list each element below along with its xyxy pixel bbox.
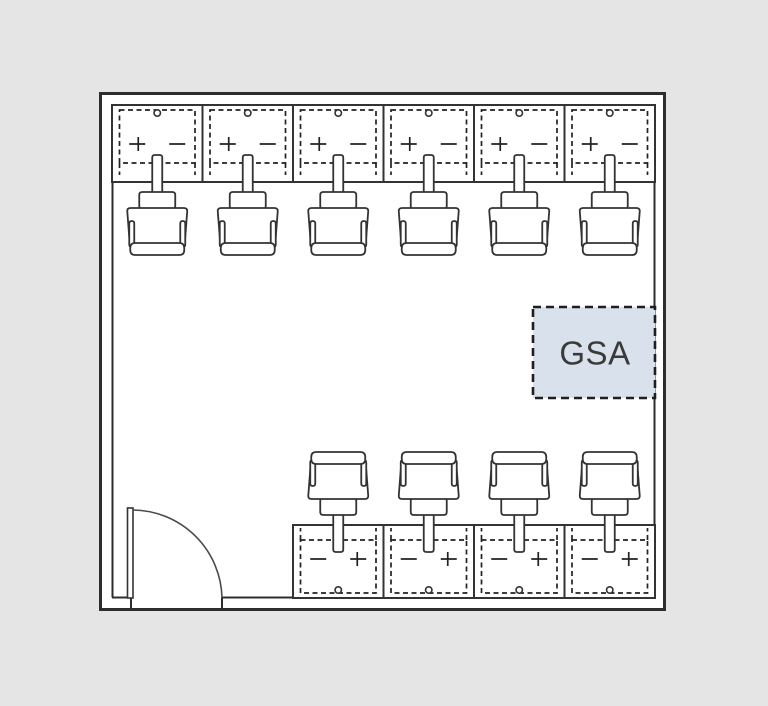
chair-seat-front (311, 243, 365, 255)
desk-grommet (516, 587, 522, 593)
chair-stem (605, 155, 615, 195)
floorplan-canvas: GSA (0, 0, 768, 706)
door-leaf (128, 508, 134, 598)
desk-grommet (426, 587, 432, 593)
chair-stem (333, 512, 343, 552)
chair-stem (605, 512, 615, 552)
chair-seat-front (583, 243, 637, 255)
chair-seat-front (492, 243, 546, 255)
gsa-zone-label: GSA (559, 335, 630, 372)
chair-seat-front (402, 452, 456, 464)
desk-grommet (607, 110, 613, 116)
chair-stem (152, 155, 162, 195)
chair-stem (514, 512, 524, 552)
floorplan-page: GSA (0, 0, 768, 706)
chair-backrest (320, 192, 356, 209)
desk-grommet (607, 587, 613, 593)
chair-seat-front (130, 243, 184, 255)
chair-stem (424, 155, 434, 195)
desk-grommet (245, 110, 251, 116)
chair-backrest (320, 498, 356, 515)
chair-stem (333, 155, 343, 195)
chair-backrest (592, 192, 628, 209)
desk-grommet (154, 110, 160, 116)
chair-backrest (411, 192, 447, 209)
desk-grommet (426, 110, 432, 116)
desk-grommet (335, 587, 341, 593)
chair-seat-front (221, 243, 275, 255)
chair-seat-front (311, 452, 365, 464)
chair-seat-front (402, 243, 456, 255)
desk-grommet (335, 110, 341, 116)
chair-backrest (501, 192, 537, 209)
chair-backrest (139, 192, 175, 209)
gsa-zone: GSA (533, 307, 655, 398)
chair-backrest (501, 498, 537, 515)
desk-grommet (516, 110, 522, 116)
chair-stem (424, 512, 434, 552)
chair-stem (514, 155, 524, 195)
chair-stem (243, 155, 253, 195)
chair-backrest (230, 192, 266, 209)
chair-backrest (411, 498, 447, 515)
chair-backrest (592, 498, 628, 515)
chair-seat-front (492, 452, 546, 464)
chair-seat-front (583, 452, 637, 464)
